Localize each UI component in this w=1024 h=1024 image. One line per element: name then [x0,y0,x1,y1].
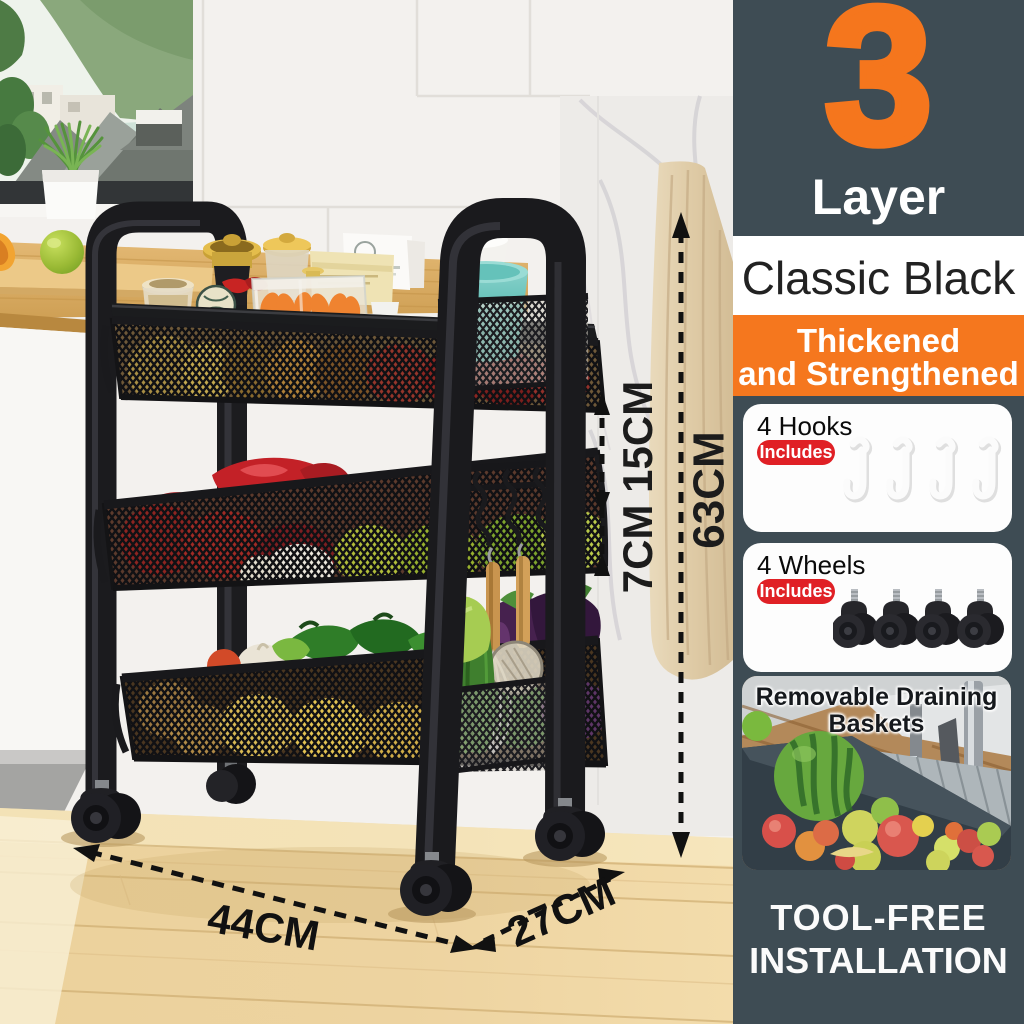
svg-text:63CM: 63CM [685,431,734,548]
svg-text:7CM 15CM: 7CM 15CM [614,381,661,593]
